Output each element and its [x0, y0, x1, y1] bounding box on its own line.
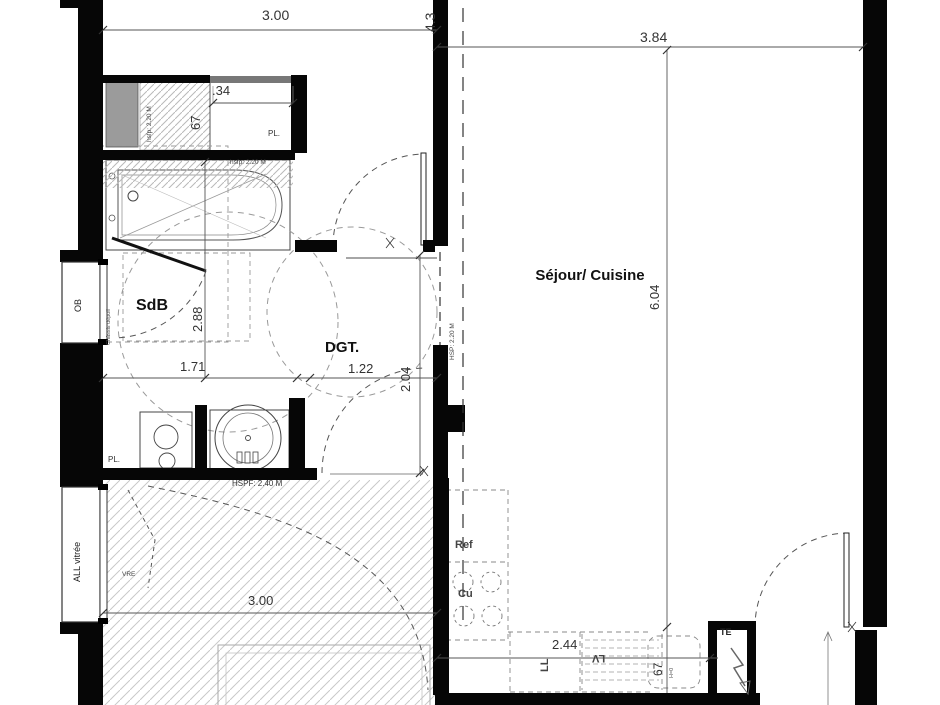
height-lower-room: HSPF: 2.40 M [232, 480, 282, 488]
door-arc-dgt-top [333, 154, 425, 246]
dim-dgt-width: 1.22 [348, 362, 373, 375]
door-arc-entrance [755, 533, 849, 627]
washbasin-unit [140, 412, 192, 469]
height-sejour: HSP: 2.20 M [450, 323, 457, 360]
room-label-sdb: SdB [136, 298, 168, 314]
dim-closet-depth: 67 [189, 116, 202, 130]
electrical-panel-label: TE [720, 628, 732, 637]
dishwasher-label: LV [592, 652, 605, 663]
chassis-note: Châssis dépoli [107, 309, 113, 345]
duct-shaft [106, 79, 138, 147]
dim-top-width: 3.00 [262, 8, 289, 22]
shutter-label: VRE [122, 572, 135, 579]
dim-sejour-width: 3.84 [640, 30, 667, 44]
dim-left-wall: 4.3 [423, 13, 437, 32]
dim-closet-width: .34 [212, 84, 230, 97]
cooktop-label: Cu [458, 589, 473, 600]
room-label-dgt: DGT. [325, 340, 359, 355]
hinge-marks [386, 238, 856, 632]
window-glazed [62, 484, 108, 624]
washer-label: LL [540, 659, 551, 672]
height-bath: hsfp: 2.20 M [230, 160, 266, 167]
dim-dgt-height: 2.04 [399, 367, 412, 392]
window-label-ob: OB [74, 299, 83, 312]
height-closet: hsfp: 2.20 M [147, 106, 154, 142]
dim-lower-width: 3.00 [248, 594, 273, 607]
closet-label-top: PL. [268, 130, 280, 138]
window-label-glazed: ALL vitrée [73, 542, 82, 582]
dim-sejour-height: 6.04 [648, 285, 661, 310]
sink-note: H=0 [670, 668, 676, 678]
floor-plan: 3.00 4.3 3.84 .34 hsfp: 2.20 M 67 PL. hs… [0, 0, 940, 705]
closet-label-bath: PL. [108, 456, 120, 464]
dim-counter-depth: 67 [652, 663, 664, 676]
closet-front-edge [210, 76, 293, 83]
fridge-label: Ref [455, 540, 473, 551]
window-ob [62, 259, 108, 345]
electrical-panel-box [717, 630, 750, 694]
dim-sdb-width: 1.71 [180, 360, 205, 373]
room-label-sejour: Séjour/ Cuisine [520, 268, 660, 283]
round-sink-unit [210, 405, 289, 471]
dim-counter-width: 2.44 [552, 638, 577, 651]
dim-sdb-height: 2.88 [191, 307, 204, 332]
